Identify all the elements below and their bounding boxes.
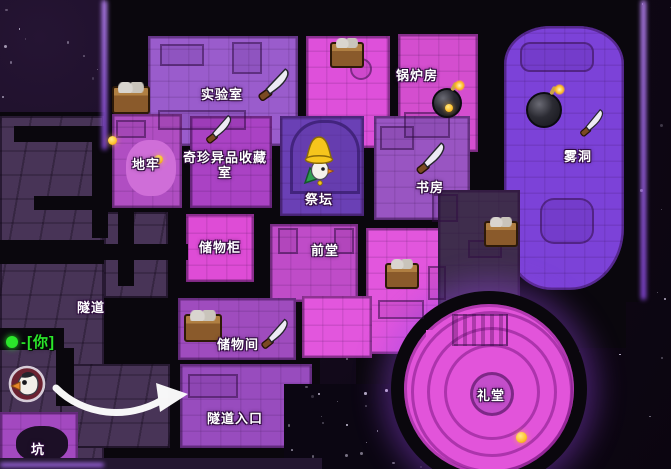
map-edge-glow [0, 463, 104, 467]
guide-arrow-icon [50, 378, 190, 429]
room-label-dungeon: 地牢 [132, 157, 160, 172]
maze-corridor [34, 196, 96, 210]
furniture-outline [278, 228, 298, 254]
room-label-laboratory: 实验室 [201, 87, 243, 102]
furniture-outline [428, 266, 446, 300]
game-map-screen: 实验室 锅炉房 雾洞 地牢 奇珍异品收藏室 祭坛 书房 储物柜 前堂 隧道 储物… [0, 0, 671, 469]
auditorium-organ [452, 314, 508, 346]
maze-corridor [92, 142, 108, 238]
room-label-tunnel-entrance: 隧道入口 [207, 411, 263, 426]
coin-sparkle-icon [108, 136, 117, 145]
furniture-outline [378, 300, 424, 319]
map-edge-glow [102, 0, 107, 150]
room-label-pit: 坑 [31, 442, 45, 457]
furniture-outline [520, 42, 594, 72]
furniture-outline [160, 44, 204, 66]
maze-corridor [96, 244, 188, 260]
room-label-front-hall: 前堂 [311, 243, 339, 258]
crate-icon[interactable] [385, 263, 419, 289]
player-position-dot [6, 336, 18, 348]
room-label-storage-room: 储物间 [217, 337, 259, 352]
room-label-boiler-room: 锅炉房 [396, 68, 438, 83]
room-library-strip [302, 296, 372, 358]
crate-icon[interactable] [330, 42, 364, 68]
room-label-tunnel: 隧道 [77, 300, 105, 315]
furniture-outline [116, 120, 146, 138]
crate-icon[interactable] [484, 221, 518, 247]
furniture-outline [380, 126, 414, 150]
map-edge-glow [641, 0, 646, 300]
player-avatar [8, 365, 46, 408]
room-label-curiosities: 奇珍异品收藏室 [182, 150, 268, 180]
bomb-icon[interactable] [432, 88, 462, 118]
furniture-outline [232, 42, 262, 74]
maze-corridor [118, 212, 134, 286]
furniture-outline [540, 198, 594, 244]
furniture-outline [188, 374, 238, 398]
player-you-label: -[你] [21, 331, 55, 352]
crate-icon[interactable] [112, 86, 150, 114]
coin-sparkle-icon [516, 432, 527, 443]
marker-you-text: [你] [27, 334, 55, 351]
room-label-fog-cave: 雾洞 [564, 149, 592, 164]
coin-sparkle-icon [445, 104, 453, 112]
furniture-outline [432, 194, 458, 222]
altar-character-icon [303, 136, 335, 193]
room-label-altar: 祭坛 [305, 192, 333, 207]
maze-corridor [0, 240, 104, 264]
room-label-auditorium: 礼堂 [477, 388, 505, 403]
room-label-lockers: 储物柜 [199, 240, 241, 255]
bomb-icon[interactable] [526, 92, 562, 128]
room-label-study: 书房 [416, 180, 444, 195]
maze-corridor [14, 126, 104, 142]
